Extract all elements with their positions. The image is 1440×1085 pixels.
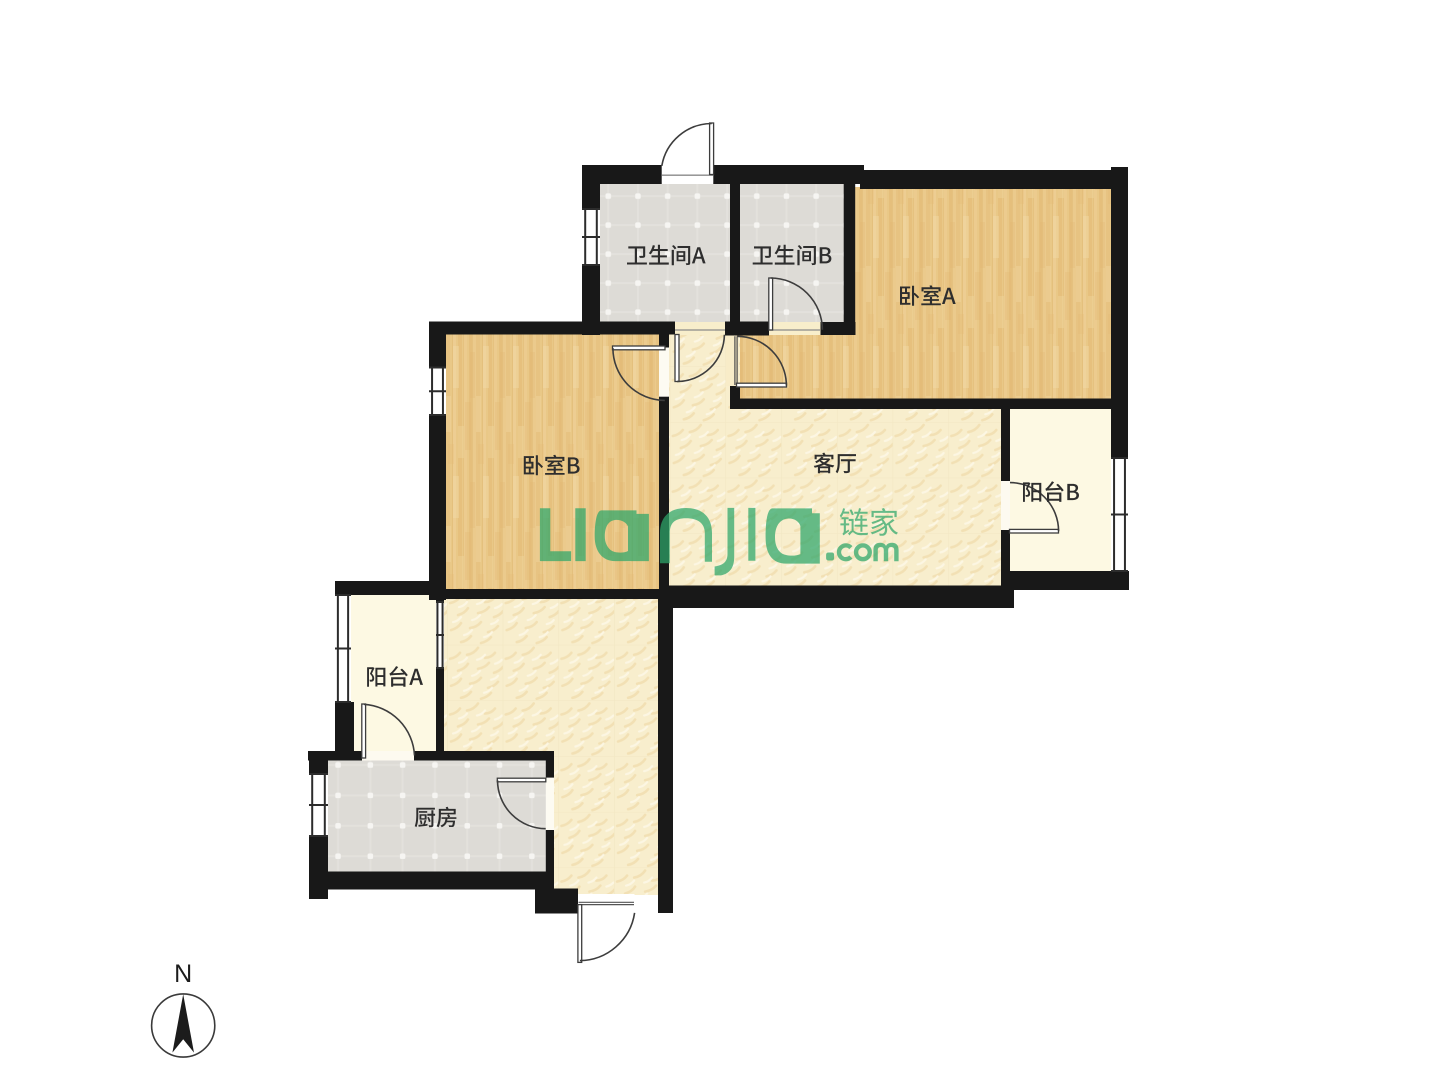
svg-text:N: N [174,960,192,988]
